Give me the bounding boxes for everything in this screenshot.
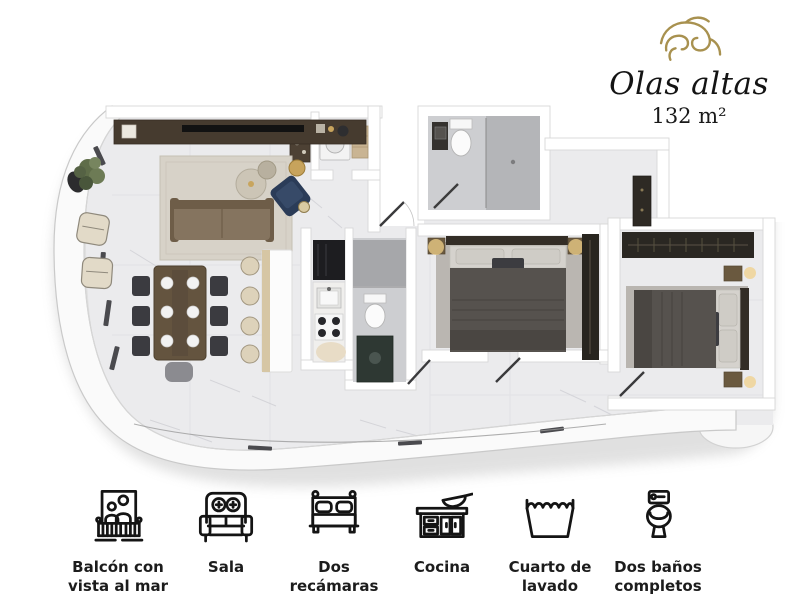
brand-area: 132 m²: [651, 104, 726, 128]
feature-label-cocina: Cocina: [414, 558, 470, 577]
brochure-page: Olas altas 132 m² Balcón con vista al ma…: [0, 0, 790, 614]
sofa-icon: [195, 487, 257, 549]
sofa: [170, 198, 274, 242]
brand-logo: Olas altas 132 m²: [594, 10, 784, 128]
tv: [182, 125, 304, 132]
feature-label-recamaras: Dos recámaras: [290, 558, 379, 596]
stove: [315, 314, 343, 340]
feature-label-banos: Dos baños completos: [614, 558, 702, 596]
wave-icon: [645, 10, 733, 68]
features-row: Balcón con vista al mar Sala: [64, 487, 724, 596]
laundry-icon: [519, 487, 581, 549]
feature-label-balcony: Balcón con vista al mar: [68, 558, 168, 596]
gold-side-table: [289, 160, 305, 176]
bathroom-1: [428, 116, 540, 210]
bed-1: [450, 246, 566, 352]
feature-recamaras: Dos recámaras: [280, 487, 388, 596]
bed-icon: [303, 487, 365, 549]
floor-lamp: [299, 202, 310, 213]
feature-label-sala: Sala: [208, 558, 244, 577]
feature-sala: Sala: [172, 487, 280, 596]
bed-2: [634, 290, 740, 368]
balcony-icon: [87, 487, 149, 549]
kitchen: [313, 240, 346, 362]
feature-balcony: Balcón con vista al mar: [64, 487, 172, 596]
feature-lavado: Cuarto de lavado: [496, 487, 604, 596]
feature-banos: Dos baños completos: [604, 487, 712, 596]
feature-cocina: Cocina: [388, 487, 496, 596]
kitchen-icon: [411, 487, 473, 549]
feature-label-lavado: Cuarto de lavado: [509, 558, 592, 596]
hall-console: [633, 176, 651, 226]
toilet-icon: [627, 487, 689, 549]
lounge-chair-1: [76, 212, 111, 247]
brand-name: Olas altas: [609, 68, 769, 101]
lounge-chair-2: [81, 257, 113, 289]
